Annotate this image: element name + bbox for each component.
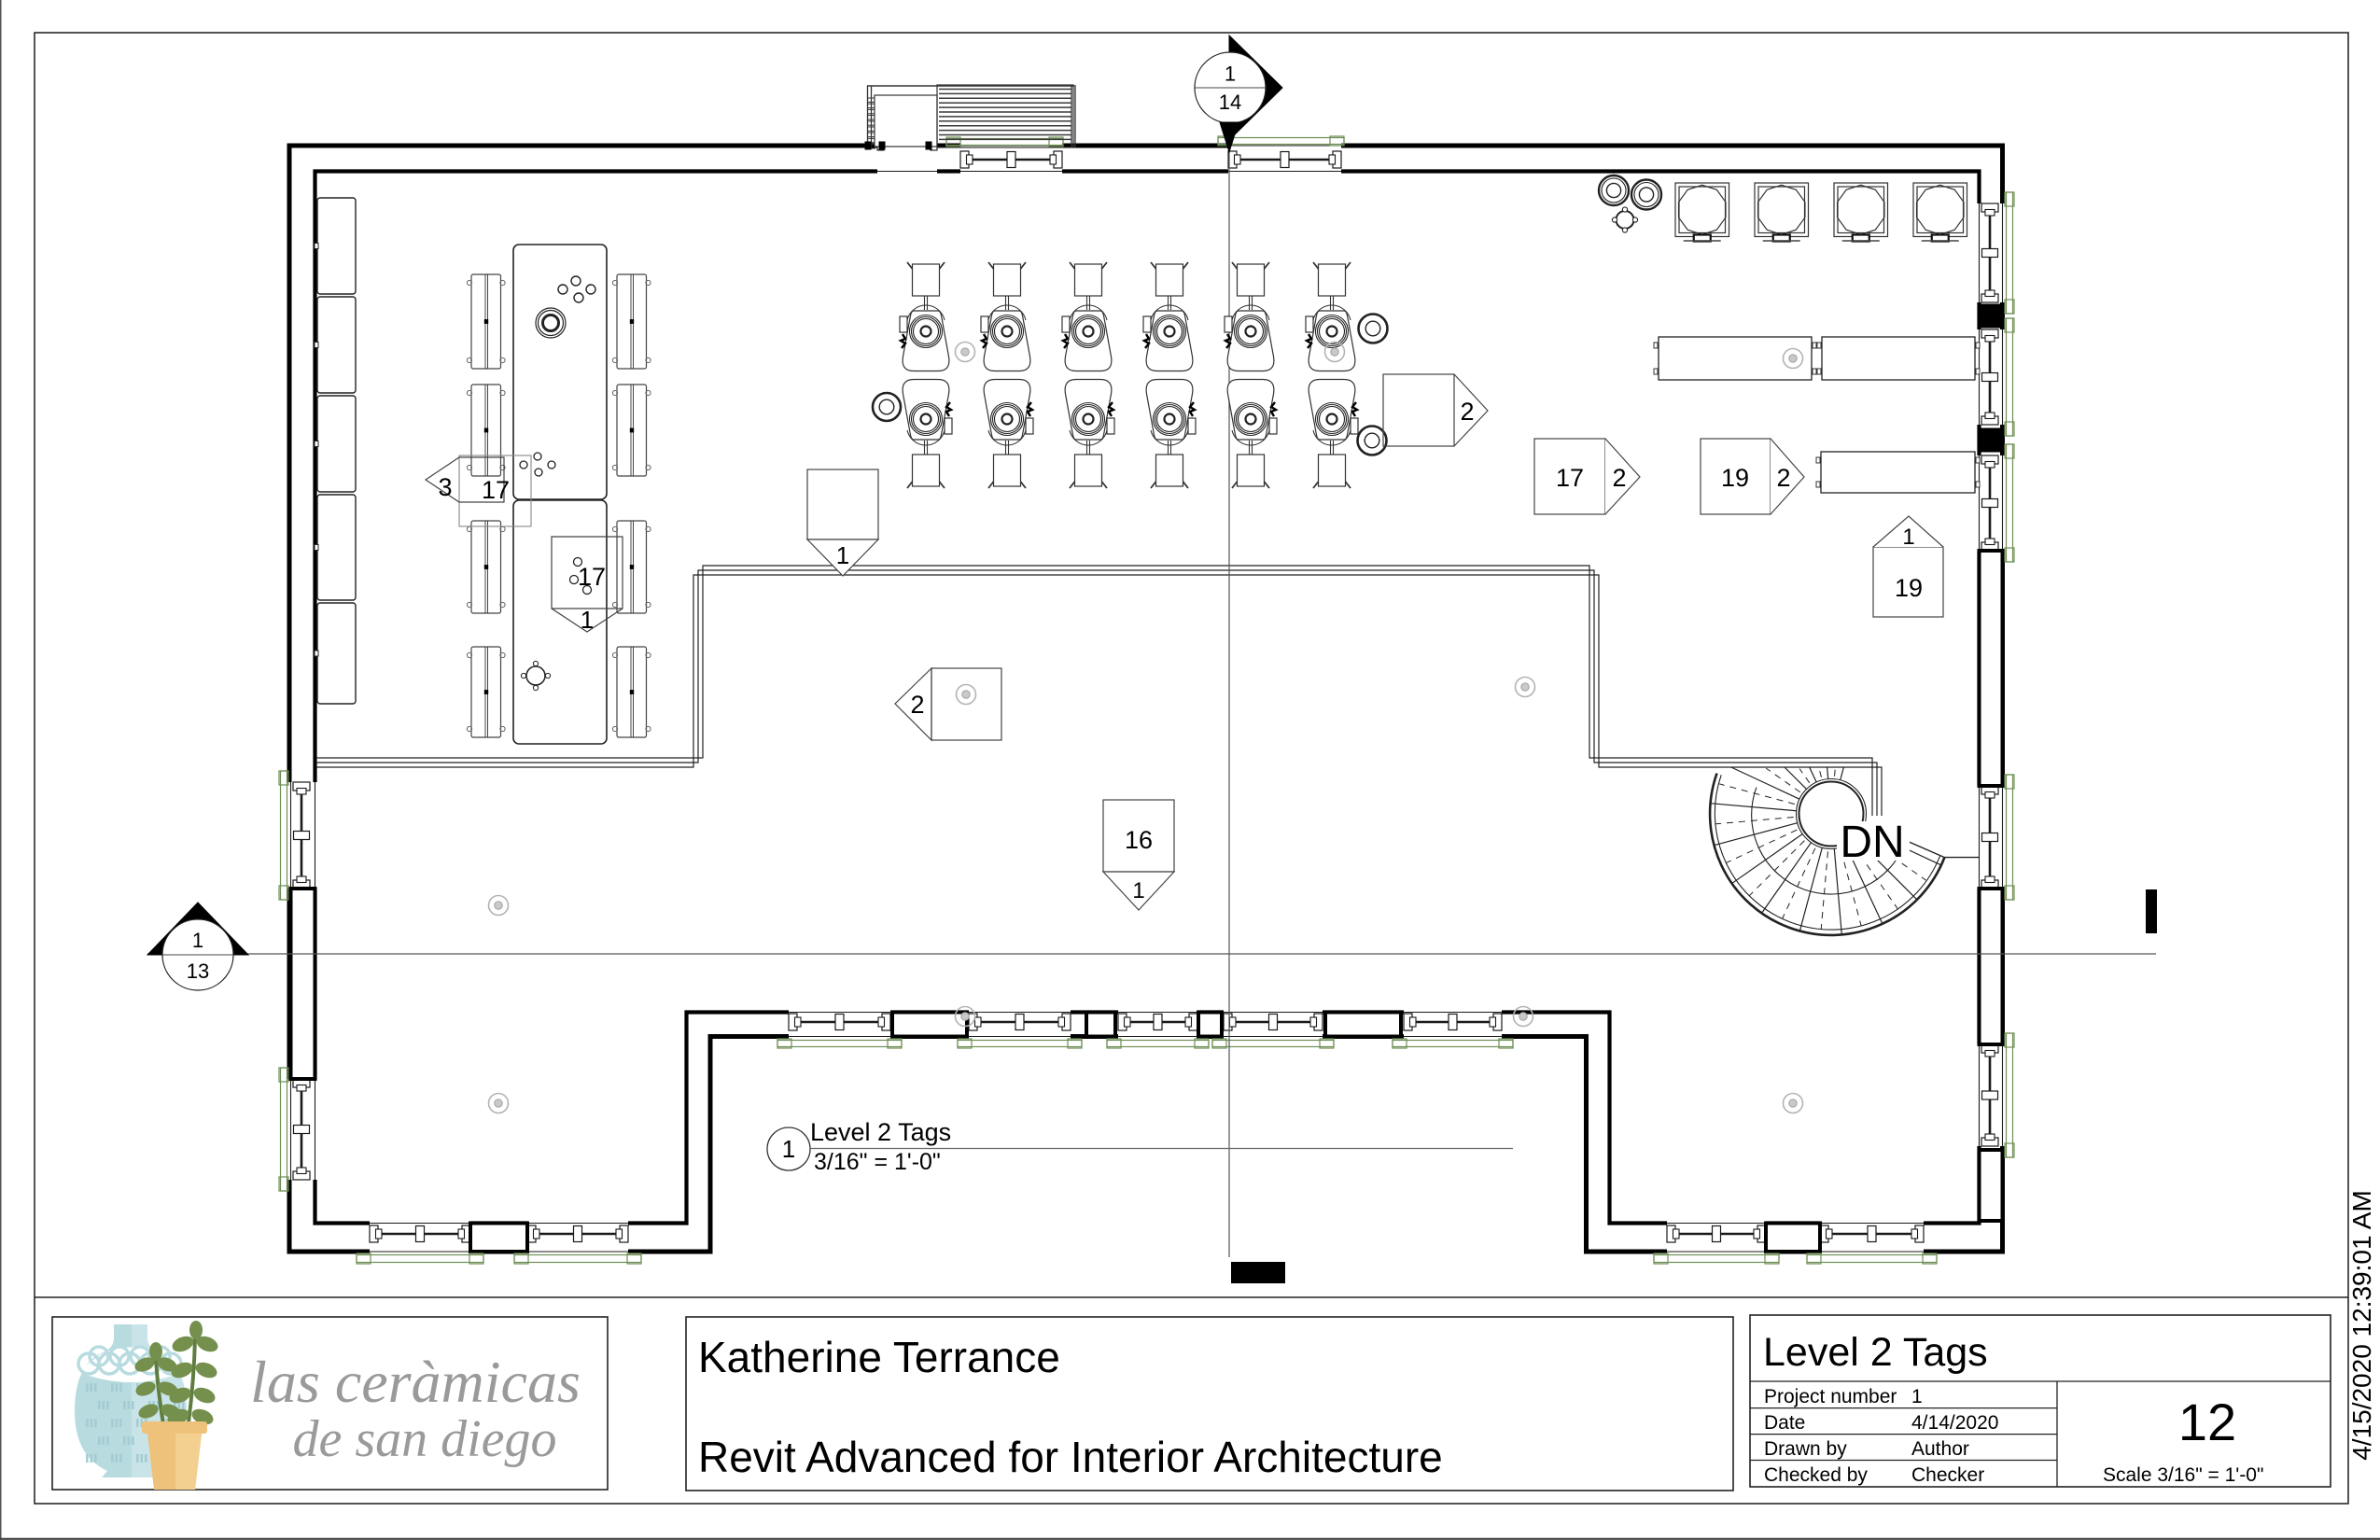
svg-text:17: 17 xyxy=(482,476,510,504)
svg-text:17: 17 xyxy=(578,563,606,591)
svg-text:Level 2 Tags: Level 2 Tags xyxy=(810,1118,951,1146)
svg-text:1: 1 xyxy=(1132,878,1144,903)
svg-text:Katherine Terrance: Katherine Terrance xyxy=(698,1333,1060,1381)
svg-text:1: 1 xyxy=(1911,1386,1923,1407)
svg-text:2: 2 xyxy=(1612,464,1626,492)
svg-text:Project number: Project number xyxy=(1764,1386,1897,1407)
svg-text:4/15/2020 12:39:01 AM: 4/15/2020 12:39:01 AM xyxy=(2347,1190,2376,1461)
svg-text:12: 12 xyxy=(2178,1393,2236,1451)
svg-text:Drawn by: Drawn by xyxy=(1764,1438,1847,1460)
svg-text:2: 2 xyxy=(1776,464,1790,492)
svg-text:1: 1 xyxy=(581,606,594,634)
svg-text:4/14/2020: 4/14/2020 xyxy=(1911,1412,1998,1434)
svg-text:Revit Advanced for Interior Ar: Revit Advanced for Interior Architecture xyxy=(698,1433,1443,1481)
svg-text:DN: DN xyxy=(1840,818,1904,867)
svg-text:Author: Author xyxy=(1911,1438,1969,1460)
svg-text:2: 2 xyxy=(1460,398,1474,426)
svg-text:1: 1 xyxy=(836,541,849,569)
svg-text:19: 19 xyxy=(1895,574,1923,602)
svg-text:1: 1 xyxy=(1902,525,1914,550)
svg-text:2: 2 xyxy=(910,691,924,719)
svg-text:3: 3 xyxy=(438,473,452,501)
svg-text:17: 17 xyxy=(1556,464,1584,492)
svg-text:3/16" = 1'-0": 3/16" = 1'-0" xyxy=(814,1149,941,1175)
svg-text:Scale 3/16" = 1'-0": Scale 3/16" = 1'-0" xyxy=(2103,1464,2263,1486)
svg-text:16: 16 xyxy=(1125,826,1153,854)
svg-text:1: 1 xyxy=(192,929,203,952)
svg-text:Date: Date xyxy=(1764,1412,1805,1434)
svg-text:13: 13 xyxy=(187,959,209,983)
svg-text:14: 14 xyxy=(1219,91,1241,114)
svg-text:Checked by: Checked by xyxy=(1764,1464,1868,1486)
svg-text:de san diego: de san diego xyxy=(292,1410,556,1468)
svg-text:Checker: Checker xyxy=(1911,1464,1984,1486)
svg-text:19: 19 xyxy=(1721,464,1749,492)
svg-text:1: 1 xyxy=(1225,63,1236,86)
svg-text:las ceràmicas: las ceràmicas xyxy=(250,1349,581,1415)
svg-text:1: 1 xyxy=(782,1135,795,1163)
svg-text:Level 2 Tags: Level 2 Tags xyxy=(1763,1330,1988,1375)
